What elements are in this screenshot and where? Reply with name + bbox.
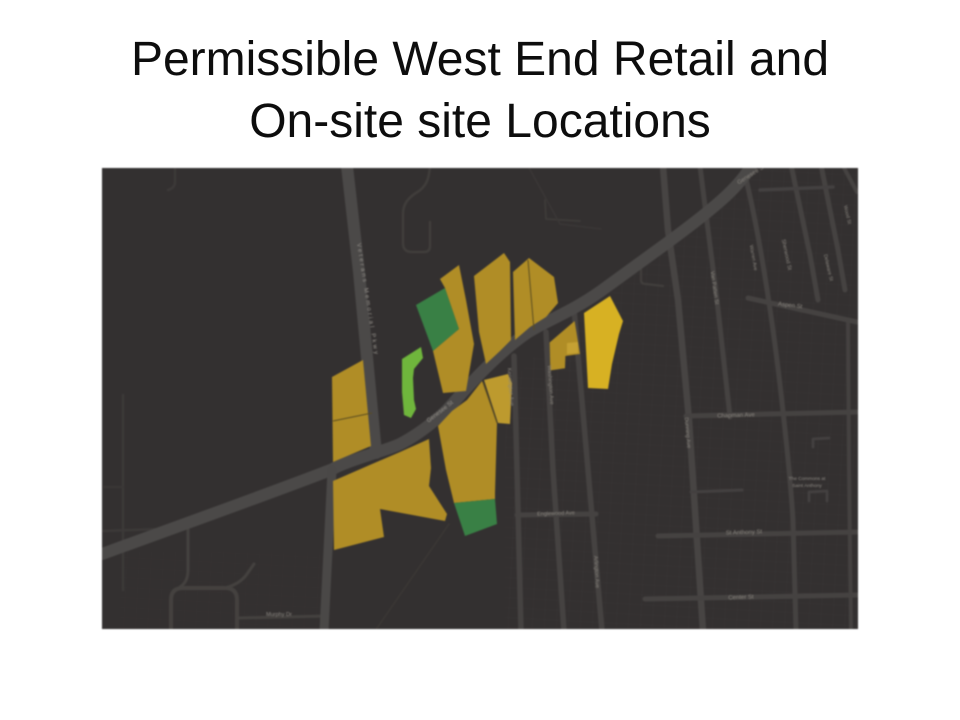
- svg-text:Center St: Center St: [728, 595, 754, 602]
- svg-text:Saint Anthony: Saint Anthony: [792, 483, 822, 489]
- svg-text:St Anthony St: St Anthony St: [726, 529, 763, 536]
- svg-text:Murphy Dr: Murphy Dr: [266, 612, 292, 618]
- svg-text:The Commons at: The Commons at: [789, 476, 826, 482]
